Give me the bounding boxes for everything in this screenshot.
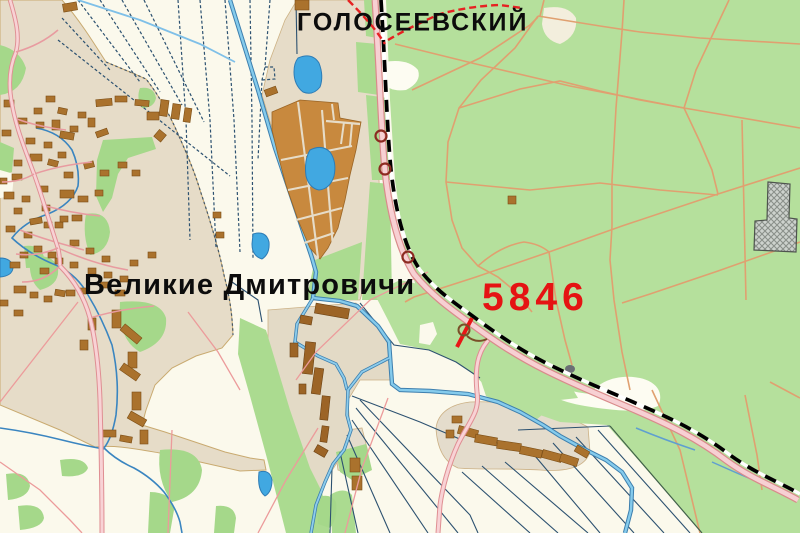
svg-text:5846: 5846 <box>482 276 589 319</box>
svg-text:Великие Дмитровичи: Великие Дмитровичи <box>84 269 415 301</box>
svg-text:ГОЛОСЕЕВСКИЙ: ГОЛОСЕЕВСКИЙ <box>297 7 528 37</box>
